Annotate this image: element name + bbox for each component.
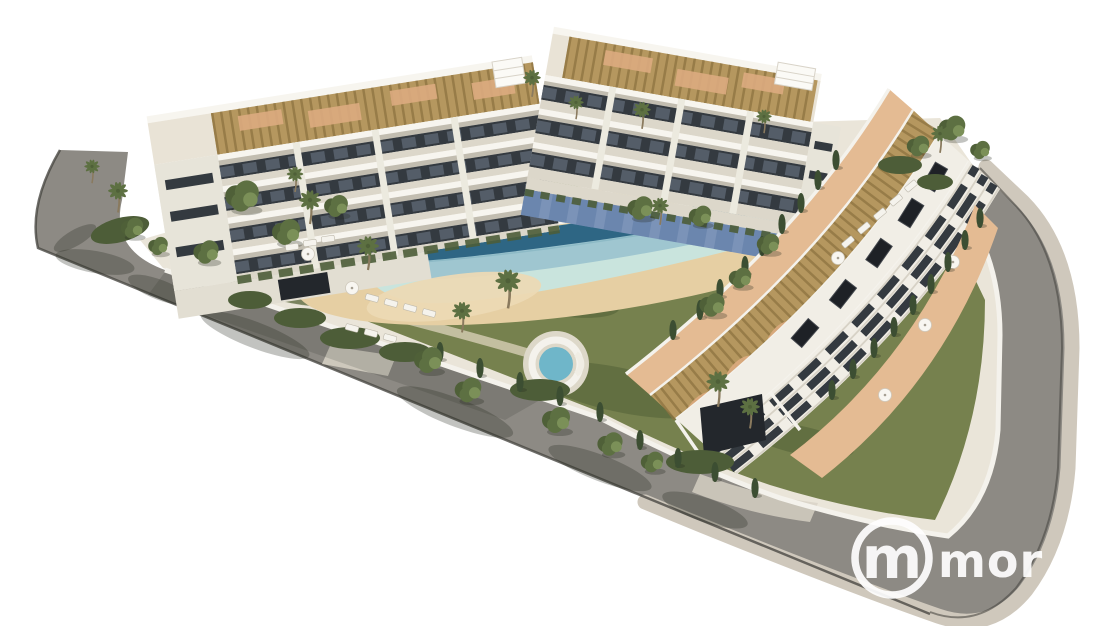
render-canvas: Aerial render of a modern white apartmen… xyxy=(0,0,1110,626)
watermark-logo-letter: m xyxy=(862,524,922,592)
architectural-render: Aerial render of a modern white apartmen… xyxy=(0,0,1110,626)
walkway-canopy xyxy=(492,57,526,87)
watermark-text: mor xyxy=(938,534,1043,588)
